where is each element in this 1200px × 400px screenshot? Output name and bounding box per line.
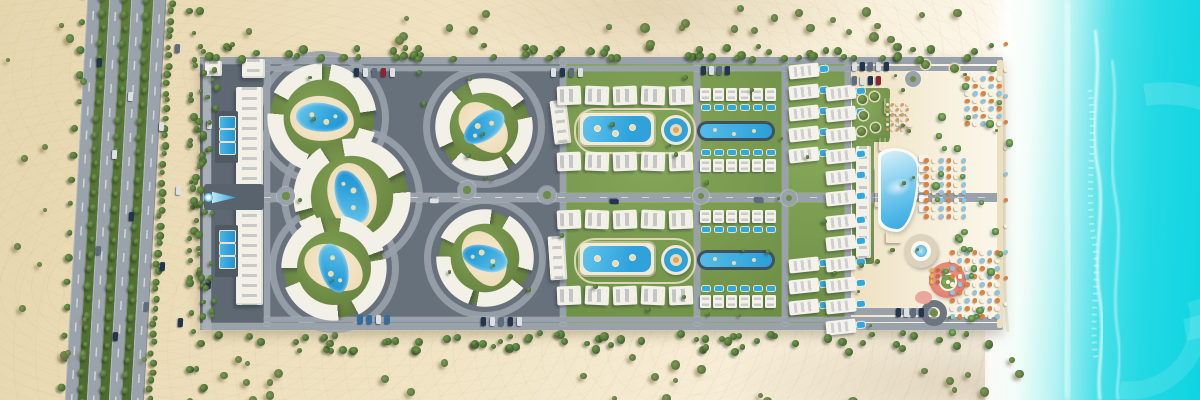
garden-villa (585, 209, 610, 229)
beach-umbrella (962, 182, 967, 187)
garden-villa (613, 85, 638, 105)
parked-car (868, 76, 873, 85)
parked-car (367, 315, 372, 324)
townhouse-roof (765, 88, 776, 101)
building-slab (547, 235, 567, 280)
parked-car (207, 120, 212, 129)
beach-umbrella (988, 314, 993, 319)
beach-umbrella (950, 298, 955, 303)
beach-umbrella (891, 118, 894, 121)
beach-umbrella (965, 274, 970, 279)
shore-umbrella (1004, 250, 1008, 254)
garden-villa (641, 285, 666, 305)
beach-umbrella (901, 123, 904, 126)
circular-pool-cabana (673, 127, 679, 133)
beach-umbrella (981, 106, 986, 111)
beach-umbrella (950, 250, 955, 255)
beach-umbrella (973, 306, 978, 311)
beach-umbrella (939, 158, 944, 163)
roundabout (277, 187, 295, 205)
garden-villa (669, 285, 694, 305)
beach-umbrella (932, 166, 937, 171)
private-pool (767, 105, 775, 110)
plaza-tree-planter (870, 92, 879, 101)
townhouse-roof (700, 295, 711, 308)
roundabout-island (282, 192, 289, 199)
townhouse-plot (739, 150, 750, 172)
townhouse-roof (700, 88, 711, 101)
pool-island (732, 132, 736, 136)
beach-umbrella (973, 250, 978, 255)
pool-island (613, 131, 618, 136)
beach-umbrella (997, 106, 1002, 111)
beach-umbrella (901, 113, 904, 116)
shore-umbrella (1004, 302, 1008, 306)
pool-island (350, 187, 357, 194)
beach-villa-pool (857, 172, 866, 179)
pool-island (713, 257, 717, 261)
townhouse-plot (713, 286, 724, 308)
parked-car (128, 92, 133, 101)
linear-pool-deck (697, 121, 775, 141)
beach-umbrella (886, 103, 889, 106)
townhouse-plot (739, 88, 750, 110)
townhouse-roof (739, 295, 750, 308)
beach-umbrella (924, 174, 929, 179)
lagoon-pool-terrace (580, 243, 654, 275)
linear-pool-water (700, 253, 772, 267)
courtyard-pool (219, 116, 236, 129)
plaza-tree-planter (857, 127, 866, 136)
building-slab (236, 87, 263, 188)
beach-umbrella (930, 280, 934, 284)
parked-car (551, 68, 556, 77)
beach-umbrella (995, 274, 1000, 279)
linear-pool-deck (697, 250, 775, 270)
townhouse-roof (700, 159, 711, 172)
beach-umbrella (973, 106, 978, 111)
shore-umbrella (1004, 276, 1008, 280)
beach-villa (825, 318, 856, 335)
beach-umbrella (891, 103, 894, 106)
beach-umbrella (973, 91, 978, 96)
pool-island (489, 120, 496, 127)
parked-car (159, 122, 164, 131)
beach-umbrella (965, 282, 970, 287)
parked-car (868, 62, 873, 71)
garden-villa (557, 151, 582, 171)
townhouse-plot (765, 286, 776, 308)
beach-umbrella (930, 274, 934, 278)
beach-umbrella (958, 306, 963, 311)
beach-umbrella (954, 214, 959, 219)
parked-car (560, 68, 565, 77)
beach-umbrella (981, 114, 986, 119)
parked-car (96, 246, 101, 255)
beach-umbrella (896, 103, 899, 106)
beach-umbrella (973, 121, 978, 126)
townhouse-plot (726, 88, 737, 110)
beach-villa-pool (857, 322, 866, 329)
private-pool (754, 150, 762, 155)
beach-umbrella (981, 99, 986, 104)
beach-umbrella (995, 266, 1000, 271)
beach-umbrella (962, 198, 967, 203)
roundabout (905, 71, 921, 87)
townhouse-roof (752, 295, 763, 308)
parked-car (354, 68, 359, 77)
beach-umbrella (932, 198, 937, 203)
building-slab (205, 61, 222, 76)
pool-island (470, 254, 475, 259)
garden-villa (585, 285, 610, 305)
beach-villa-pool (857, 301, 866, 308)
beach-villa-pool (857, 259, 866, 266)
parked-car (876, 62, 881, 71)
beach-villa-pool (857, 238, 866, 245)
private-pool (728, 105, 736, 110)
parked-car (860, 76, 865, 85)
beach-umbrella (932, 214, 937, 219)
townhouse-plot (700, 88, 711, 110)
pool-island (309, 112, 315, 118)
beach-umbrella (891, 128, 894, 131)
beach-umbrella (988, 274, 993, 279)
beach-umbrella (936, 268, 940, 272)
beach-villa-pool (820, 66, 829, 73)
beach-umbrella (981, 121, 986, 126)
garden-villa (613, 285, 638, 305)
garden-villa (641, 85, 666, 105)
beach-umbrella (989, 76, 994, 81)
beach-umbrella (891, 108, 894, 111)
beach-umbrella (965, 250, 970, 255)
parked-car (112, 150, 117, 159)
townhouse-roof (713, 159, 724, 172)
beach-umbrella (958, 266, 963, 271)
beach-umbrella (980, 266, 985, 271)
beach-umbrella (924, 190, 929, 195)
beach-umbrella (965, 121, 970, 126)
parked-car (363, 68, 368, 77)
townhouse-plot (700, 210, 711, 232)
beach-umbrella (965, 114, 970, 119)
beach-umbrella (980, 314, 985, 319)
beach-umbrella (995, 290, 1000, 295)
resort-compound (0, 0, 1200, 400)
townhouse-roof (726, 159, 737, 172)
beach-umbrella (947, 182, 952, 187)
plaza-tree-planter (871, 123, 880, 132)
beach-umbrella (988, 250, 993, 255)
townhouse-plot (765, 210, 776, 232)
beach-umbrella (924, 214, 929, 219)
pool-island (351, 205, 357, 211)
beach-umbrella (901, 108, 904, 111)
roundabout (538, 186, 556, 204)
beach-umbrella (950, 274, 955, 279)
private-pool (767, 150, 775, 155)
garden-villa (669, 209, 694, 229)
circular-pool (661, 115, 691, 145)
beach-umbrella (973, 84, 978, 89)
private-pool (702, 227, 710, 232)
beach-umbrella (886, 123, 889, 126)
beach-umbrella (995, 258, 1000, 263)
lagoon-pool-water (583, 246, 651, 272)
beach-umbrella (906, 128, 909, 131)
shore-umbrella (1004, 198, 1008, 202)
beach-umbrella (958, 282, 963, 287)
beach-umbrella (981, 84, 986, 89)
garden-villa (641, 209, 666, 229)
townhouse-plot (752, 150, 763, 172)
linear-pool-water (700, 124, 772, 138)
shore-umbrella (1004, 94, 1008, 98)
beach-umbrella (950, 314, 955, 319)
plaza-tree-planter (921, 60, 930, 69)
beach-umbrella (997, 121, 1002, 126)
beach-umbrella (906, 118, 909, 121)
courtyard-pool (219, 256, 236, 269)
shore-umbrella (1004, 120, 1008, 124)
beach-umbrella (962, 206, 967, 211)
beach-umbrella (954, 174, 959, 179)
parked-car (176, 186, 181, 195)
beach-umbrella (939, 214, 944, 219)
beach-umbrella (981, 91, 986, 96)
parked-car (709, 66, 714, 75)
beach-umbrella (924, 198, 929, 203)
parked-car (390, 68, 395, 77)
parked-car (372, 68, 377, 77)
townhouse-roof (713, 210, 724, 223)
pool-island (595, 126, 600, 131)
pool-island (337, 278, 342, 283)
parked-car (385, 315, 390, 324)
pool-island (333, 114, 338, 119)
townhouse-roof (713, 88, 724, 101)
parked-car (725, 66, 730, 75)
courtyard-pool (219, 142, 236, 155)
townhouse-plot (700, 150, 711, 172)
beach-umbrella (947, 198, 952, 203)
shore-umbrella (1004, 146, 1008, 150)
plaza-tree-planter (858, 95, 867, 104)
parked-car (381, 68, 386, 77)
beach-umbrella (980, 290, 985, 295)
beach-umbrella (965, 91, 970, 96)
roundabout-island (543, 191, 550, 198)
beach-umbrella (891, 113, 894, 116)
pool-island (490, 258, 496, 264)
beach-umbrella (886, 118, 889, 121)
beach-villa-pool (857, 151, 866, 158)
beach-umbrella (995, 282, 1000, 287)
private-pool (754, 227, 762, 232)
pool-island (613, 261, 618, 266)
private-pool (741, 150, 749, 155)
beach-umbrella (989, 121, 994, 126)
beach-umbrella (965, 306, 970, 311)
beach-umbrella (988, 290, 993, 295)
townhouse-plot (700, 286, 711, 308)
beach-umbrella (997, 114, 1002, 119)
beach-umbrella (954, 158, 959, 163)
garden-villa (557, 209, 582, 229)
garden-villa (557, 285, 582, 305)
beach-umbrella (988, 258, 993, 263)
beach-umbrella (896, 108, 899, 111)
beach-umbrella (886, 113, 889, 116)
beach-umbrella (901, 128, 904, 131)
beach-umbrella (973, 314, 978, 319)
private-pool (741, 286, 749, 291)
beach-umbrella (954, 166, 959, 171)
parked-car (876, 76, 881, 85)
parked-car (904, 308, 909, 317)
beach-umbrella (939, 166, 944, 171)
townhouse-roof (739, 210, 750, 223)
parked-car (852, 62, 857, 71)
shore-umbrella (1004, 68, 1008, 72)
townhouse-plot (726, 150, 737, 172)
beach-umbrella (988, 282, 993, 287)
parked-car (569, 68, 574, 77)
beach-umbrella (932, 182, 937, 187)
beach-umbrella (936, 274, 940, 278)
beach-umbrella (886, 108, 889, 111)
beach-umbrella (980, 306, 985, 311)
garden-villa (641, 151, 666, 171)
parked-car (97, 58, 102, 67)
parked-car (160, 262, 165, 271)
townhouse-plot (765, 150, 776, 172)
kids-pink-pad (915, 291, 932, 304)
residential-cluster (280, 214, 388, 322)
beach-umbrella (901, 118, 904, 121)
pool-island (342, 182, 347, 187)
beach-villa-pool (857, 280, 866, 287)
townhouse-roof (739, 159, 750, 172)
beach-umbrella (942, 280, 946, 284)
beach-villa-pool (857, 193, 866, 200)
beach-umbrella (962, 166, 967, 171)
townhouse-plot (713, 88, 724, 110)
beach-umbrella (947, 214, 952, 219)
townhouse-plot (726, 286, 737, 308)
beach-umbrella (973, 258, 978, 263)
beach-umbrella (930, 268, 934, 272)
roundabout-island (786, 195, 792, 201)
private-pool (741, 227, 749, 232)
beach-umbrella (980, 282, 985, 287)
beach-umbrella (973, 290, 978, 295)
beach-umbrella (939, 206, 944, 211)
beach-umbrella (906, 113, 909, 116)
parked-car (144, 302, 149, 311)
pool-island (752, 129, 756, 133)
residential-cluster (435, 208, 535, 308)
parked-car (911, 308, 916, 317)
townhouse-plot (713, 150, 724, 172)
beach-umbrella (965, 258, 970, 263)
parked-car (358, 315, 363, 324)
beach-umbrella (950, 306, 955, 311)
townhouse-roof (726, 295, 737, 308)
beach-umbrella (924, 166, 929, 171)
pool-island (328, 271, 335, 278)
beach-umbrella (965, 314, 970, 319)
parked-car (430, 198, 439, 203)
courtyard-pool (219, 129, 236, 142)
beach-umbrella (988, 298, 993, 303)
roundabout (458, 181, 476, 199)
private-pool (767, 227, 775, 232)
beach-umbrella (980, 274, 985, 279)
townhouse-roof (726, 210, 737, 223)
beach-umbrella (932, 158, 937, 163)
townhouse-roof (765, 159, 776, 172)
beach-umbrella (932, 174, 937, 179)
beach-umbrella (995, 250, 1000, 255)
beach-umbrella (973, 76, 978, 81)
beach-umbrella (958, 250, 963, 255)
beach-umbrella (965, 290, 970, 295)
beach-umbrella (954, 182, 959, 187)
beach-umbrella (954, 206, 959, 211)
shore-umbrella (1004, 224, 1008, 228)
roundabout-island (463, 186, 470, 193)
private-pool (702, 286, 710, 291)
private-pool (741, 105, 749, 110)
beach-umbrella (950, 258, 955, 263)
private-pool (728, 150, 736, 155)
beach-umbrella (989, 84, 994, 89)
beach-umbrella (962, 174, 967, 179)
beach-umbrella (939, 190, 944, 195)
beach-umbrella (906, 108, 909, 111)
garden-villa (557, 85, 582, 105)
beach-umbrella (896, 128, 899, 131)
townhouse-plot (713, 210, 724, 232)
street (200, 323, 1003, 330)
beach-umbrella (901, 103, 904, 106)
pool-island (713, 128, 717, 132)
parked-car (919, 308, 924, 317)
terracotta-pavilion (884, 98, 908, 114)
beach-umbrella (989, 106, 994, 111)
terracotta-pavilion (886, 231, 902, 243)
beach-umbrella (973, 266, 978, 271)
parked-car (860, 62, 865, 71)
beach-umbrella (997, 99, 1002, 104)
pool-island (323, 119, 330, 126)
parked-car (175, 44, 180, 53)
pool-island (752, 258, 756, 262)
beach-umbrella (950, 282, 955, 287)
beach-umbrella (980, 250, 985, 255)
residential-cluster (434, 77, 534, 177)
private-pool (728, 227, 736, 232)
beach-umbrella (989, 99, 994, 104)
beach-umbrella (958, 274, 963, 279)
private-pool (715, 286, 723, 291)
circular-pool-cabana (673, 257, 679, 263)
beach-umbrella (896, 123, 899, 126)
townhouse-plot (739, 210, 750, 232)
beach-umbrella (947, 206, 952, 211)
